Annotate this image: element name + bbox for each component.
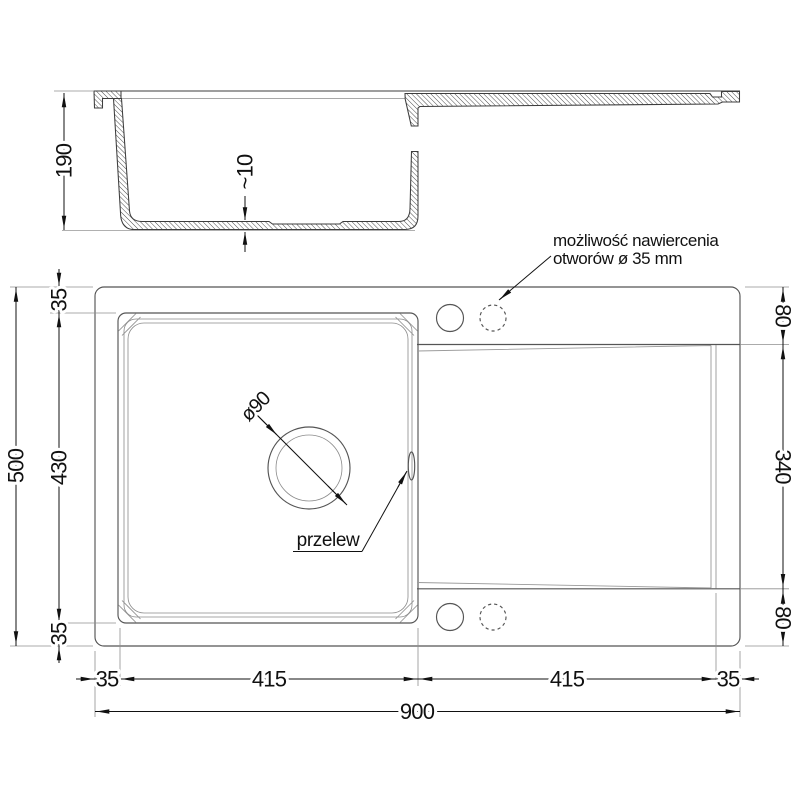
drill-note-line2: otworów ø 35 mm [553, 249, 682, 268]
technical-drawing: 190 ~10 ø90 przelew [0, 0, 800, 800]
cross-section-view: 190 ~10 [52, 91, 741, 252]
faucet-hole-bottom [437, 604, 464, 631]
sink-technical-drawing-page: 190 ~10 ø90 przelew [0, 0, 800, 800]
dim-text-edge-top: 35 [47, 288, 72, 311]
dim-text-edge-bottom: 35 [47, 622, 72, 645]
plan-view: ø90 przelew możliwość nawiercenia otworó… [95, 231, 740, 646]
dim-text-deck-bottom: 80 [771, 606, 796, 629]
arrow-drill-note [500, 292, 509, 300]
dim-text-section-height: 190 [52, 143, 77, 178]
extension-lines [10, 287, 789, 717]
dim-text-total-width: 900 [400, 699, 435, 724]
drain-outer-circle [268, 427, 350, 509]
optional-hole-bottom [480, 604, 506, 630]
arrow-overflow-leader [398, 472, 406, 487]
dim-text-edge-right: 35 [717, 667, 740, 692]
dim-text-edge-left: 35 [96, 667, 119, 692]
dim-text-bowl-depth: 430 [47, 450, 72, 485]
left-dimensions: 500 35 430 35 [4, 269, 72, 663]
faucet-hole-top [437, 305, 464, 332]
dim-text-total-depth: 500 [4, 448, 29, 483]
dim-text-drainer-width: 415 [550, 667, 585, 692]
drain-inner-circle [276, 435, 342, 501]
overflow-slot [408, 452, 414, 480]
drain-diameter-text: ø90 [237, 387, 276, 426]
dim-text-bowl-width: 415 [252, 667, 287, 692]
optional-hole-top [480, 305, 506, 331]
dim-text-bottom-thickness: ~10 [233, 154, 258, 189]
arrow-drain-lower [328, 486, 346, 504]
right-dimensions: 80 340 80 [771, 287, 796, 646]
section-bowl-body [114, 99, 419, 230]
arrow-drain-upper [258, 416, 277, 435]
drill-note-line1: możliwość nawiercenia [553, 231, 719, 250]
drainboard-slope-edges [417, 346, 711, 589]
bottom-dimensions: 35 415 415 35 900 [76, 667, 759, 725]
overflow-label: przelew [297, 530, 360, 551]
dim-text-deck-top: 80 [771, 304, 796, 327]
dim-text-drainer-depth: 340 [771, 449, 796, 484]
section-drainer-deck [405, 92, 740, 127]
